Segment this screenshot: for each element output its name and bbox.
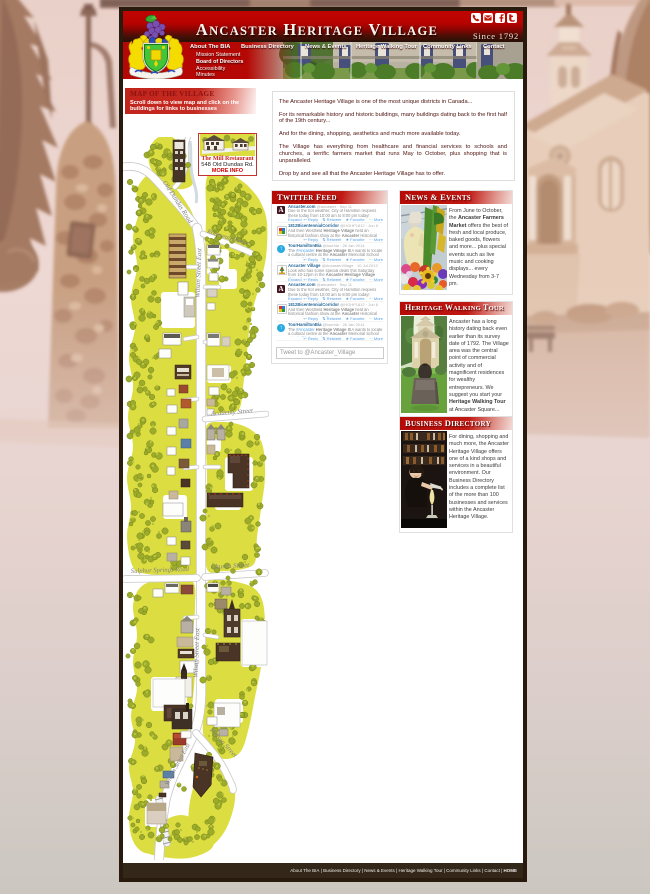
svg-text:Church Street: Church Street: [210, 561, 250, 571]
